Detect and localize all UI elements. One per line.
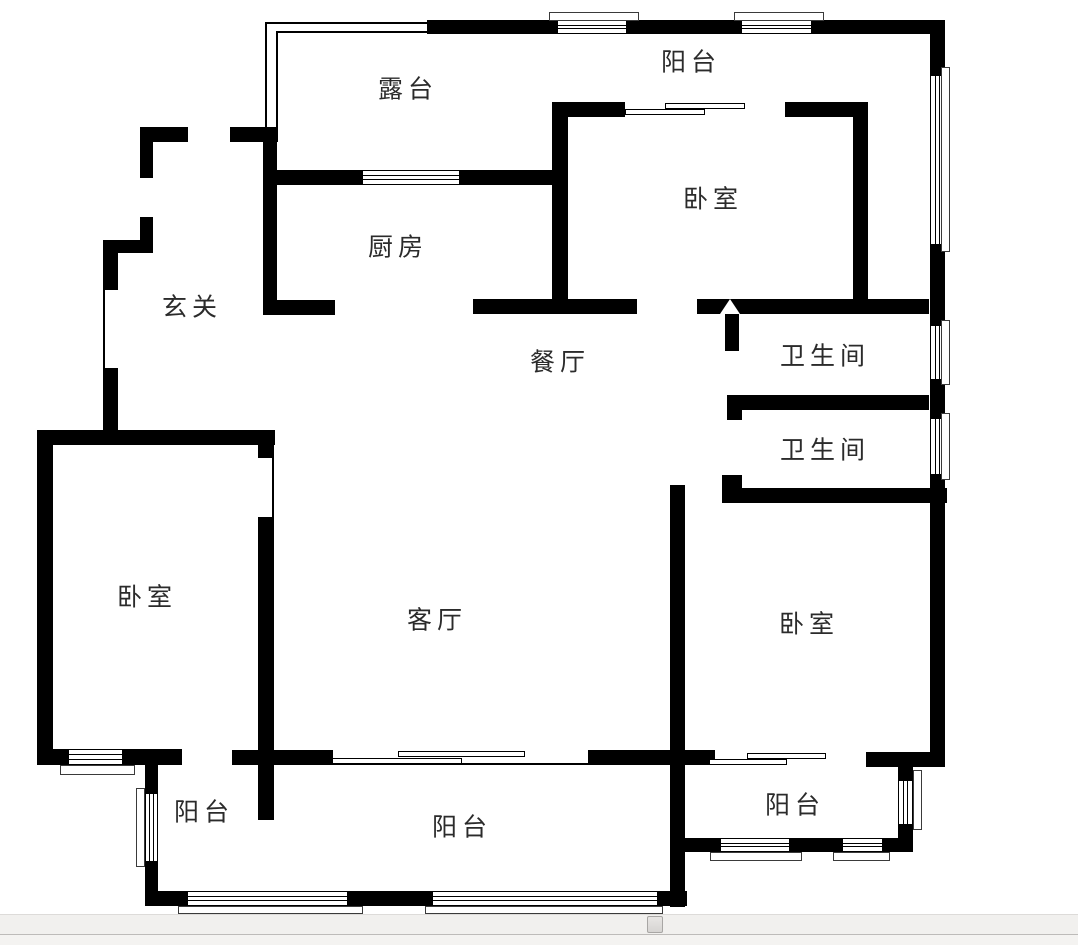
horizontal-scrollbar-track[interactable] xyxy=(0,914,1078,935)
window-sill xyxy=(833,852,890,861)
wall xyxy=(37,430,53,765)
window-horizontal xyxy=(720,838,790,852)
horizontal-scrollbar-thumb[interactable] xyxy=(647,916,663,933)
wall-line xyxy=(276,31,427,33)
sliding-door-panel xyxy=(625,109,705,115)
wall xyxy=(727,410,742,420)
sliding-door-panel xyxy=(398,751,525,757)
wall xyxy=(722,475,739,488)
wall xyxy=(427,20,557,34)
window-horizontal xyxy=(68,749,123,765)
wall xyxy=(552,102,568,301)
wall xyxy=(103,240,118,290)
wall xyxy=(258,517,274,820)
wall xyxy=(627,20,741,34)
wall xyxy=(37,430,275,445)
window-sill xyxy=(425,906,663,914)
room-label-bedroom-se: 卧室 xyxy=(779,613,839,638)
floor-plan-canvas: 露台阳台卧室厨房玄关餐厅卫生间卫生间卧室客厅卧室阳台阳台阳台 xyxy=(0,0,1078,910)
room-label-bedroom-ne: 卧室 xyxy=(683,188,743,213)
wall-line xyxy=(265,22,267,127)
sliding-door-panel xyxy=(332,758,462,764)
wall xyxy=(37,749,68,765)
room-label-bedroom-west: 卧室 xyxy=(117,586,177,611)
wall xyxy=(552,102,625,117)
wall xyxy=(263,127,277,315)
wall xyxy=(123,749,182,765)
wall xyxy=(658,891,687,906)
room-label-balcony-se: 阳台 xyxy=(765,794,825,819)
room-label-living-room: 客厅 xyxy=(407,609,467,634)
window-sill xyxy=(941,413,950,480)
wall-line xyxy=(276,31,278,127)
window-sill xyxy=(549,12,639,21)
room-label-bathroom-upper: 卫生间 xyxy=(780,345,870,370)
window-sill xyxy=(941,320,950,385)
window-vertical xyxy=(898,780,913,825)
wall xyxy=(473,299,637,314)
wall xyxy=(930,245,945,325)
window-horizontal xyxy=(557,20,627,34)
floor-plan-viewer: 露台阳台卧室厨房玄关餐厅卫生间卫生间卧室客厅卧室阳台阳台阳台 xyxy=(0,0,1078,945)
room-label-balcony-sw: 阳台 xyxy=(174,801,234,826)
window-horizontal xyxy=(362,170,460,185)
wall xyxy=(725,313,739,351)
room-label-foyer: 玄关 xyxy=(162,296,222,321)
wall xyxy=(277,170,362,185)
wall xyxy=(588,750,715,765)
sliding-door-panel xyxy=(709,759,787,765)
wall xyxy=(930,475,945,767)
window-sill xyxy=(178,906,363,914)
wall xyxy=(727,395,929,410)
room-label-balcony-top: 阳台 xyxy=(661,51,721,76)
window-sill xyxy=(710,852,802,861)
bottom-strip xyxy=(0,934,1078,945)
window-vertical xyxy=(145,793,158,862)
wall-line xyxy=(272,445,274,517)
window-sill xyxy=(734,12,824,21)
wall xyxy=(790,838,842,852)
window-horizontal xyxy=(432,891,658,906)
door-swing-arrow xyxy=(720,299,740,314)
wall xyxy=(232,750,333,765)
wall xyxy=(685,838,720,852)
wall xyxy=(866,752,945,767)
room-label-dining-room: 餐厅 xyxy=(530,351,590,376)
wall xyxy=(883,838,913,852)
wall xyxy=(898,767,913,780)
room-label-kitchen: 厨房 xyxy=(368,236,428,261)
wall xyxy=(263,300,335,315)
wall xyxy=(145,765,158,793)
room-label-bathroom-lower: 卫生间 xyxy=(780,439,870,464)
window-horizontal xyxy=(741,20,812,34)
wall xyxy=(853,115,868,301)
wall xyxy=(348,891,432,906)
wall xyxy=(460,170,552,185)
wall-line xyxy=(103,290,105,368)
room-label-terrace: 露台 xyxy=(378,78,438,103)
window-sill xyxy=(941,67,950,252)
wall xyxy=(722,488,947,503)
window-horizontal xyxy=(187,891,348,906)
wall-line xyxy=(265,22,427,24)
sliding-door-panel xyxy=(665,103,745,109)
window-sill xyxy=(60,765,135,775)
wall xyxy=(145,891,187,906)
wall xyxy=(140,127,153,178)
window-horizontal xyxy=(842,838,883,852)
window-sill xyxy=(913,770,922,830)
wall xyxy=(812,20,941,34)
room-label-balcony-s: 阳台 xyxy=(432,816,492,841)
wall xyxy=(670,485,685,907)
window-sill xyxy=(136,788,145,867)
